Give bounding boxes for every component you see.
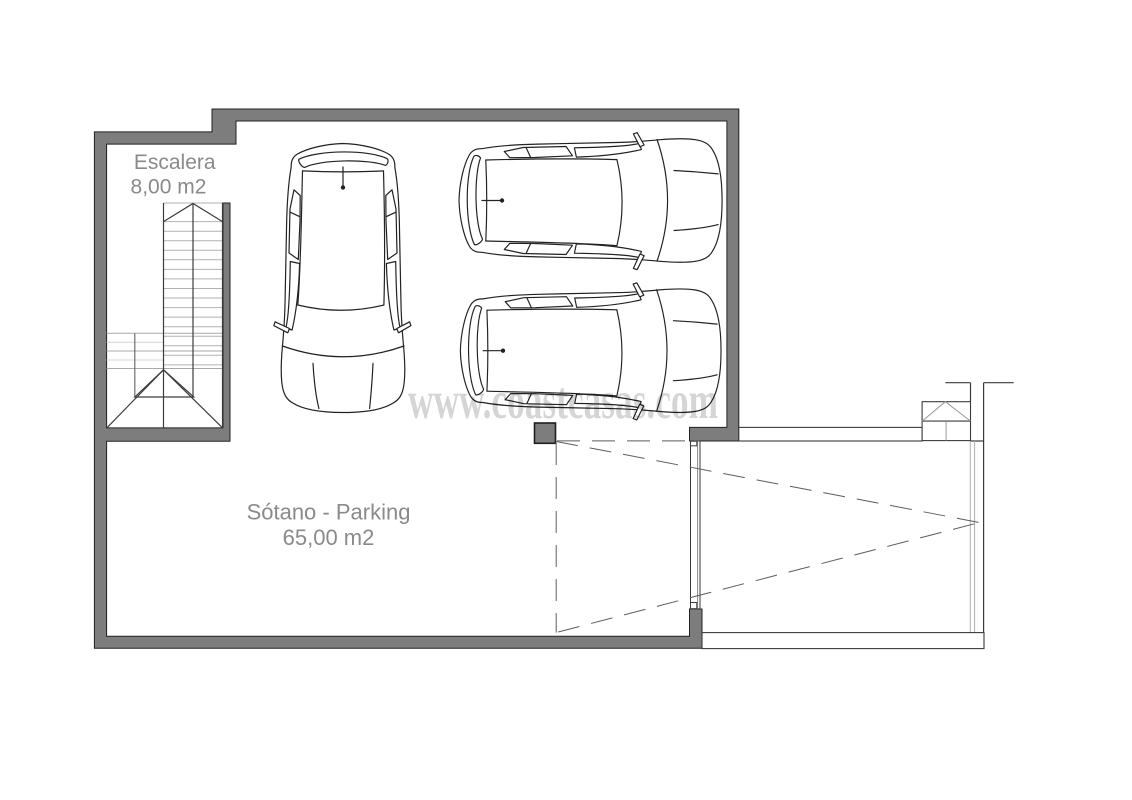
svg-text:65,00 m2: 65,00 m2 xyxy=(283,525,375,550)
svg-text:Sótano - Parking: Sótano - Parking xyxy=(247,500,411,525)
svg-text:www.coastcasas.com: www.coastcasas.com xyxy=(408,372,718,430)
svg-text:8,00 m2: 8,00 m2 xyxy=(131,176,207,199)
svg-text:Escalera: Escalera xyxy=(134,151,216,174)
